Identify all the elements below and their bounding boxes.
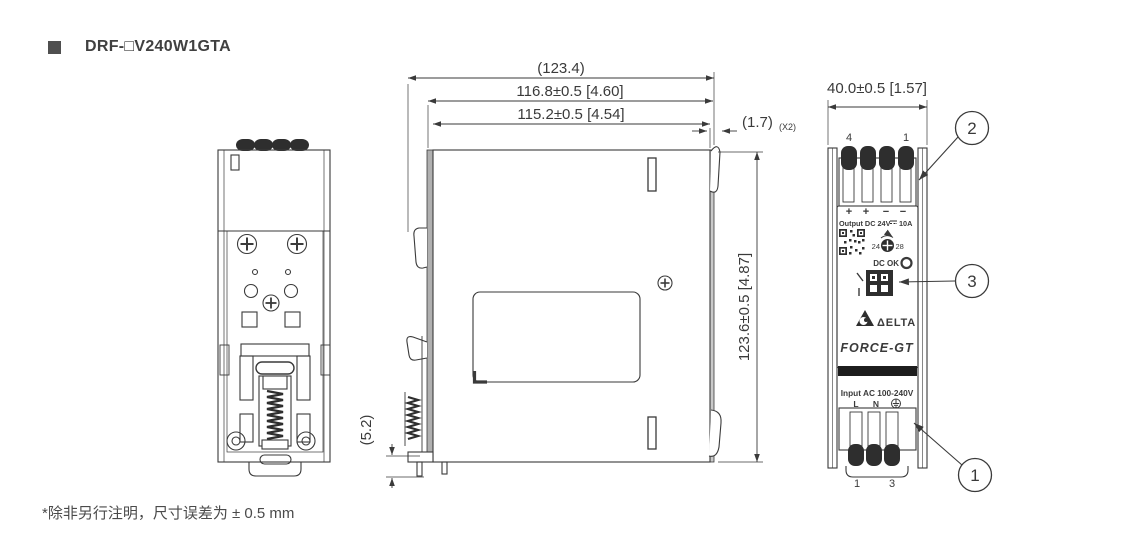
dim-front-width: 40.0±0.5 [1.57] — [827, 80, 927, 97]
callout-2: 2 — [919, 112, 989, 181]
qr-code — [839, 229, 865, 255]
phillips-screw-icon — [238, 235, 257, 254]
series-name: FORCE-GT — [840, 341, 914, 355]
dip-switch — [866, 270, 893, 296]
output-terminal-block — [839, 146, 916, 206]
input-terminal-block — [839, 408, 916, 477]
dc-ok-label: DC OK — [873, 259, 899, 268]
terminal-pin-4: 4 — [846, 132, 852, 144]
technical-drawing: 4 1 + + − − Output DC 24V 10A 24 — [0, 0, 1144, 536]
dim-clip-offset: (5.2) — [358, 415, 375, 446]
adjust-max-label: 28 — [896, 242, 904, 251]
top-mount-tab — [710, 147, 720, 192]
terminal-screws — [848, 444, 900, 466]
dim-overall-width: (123.4) — [537, 60, 585, 77]
terminal-pin-1: 1 — [903, 132, 909, 144]
rear-terminal-bumps — [236, 139, 309, 151]
brand-wordmark: ΔELTA — [877, 317, 916, 329]
square-cutout — [285, 312, 300, 327]
mount-hole — [245, 285, 258, 298]
adjust-min-label: 24 — [872, 242, 880, 251]
rear-view — [218, 139, 330, 476]
polarity-plus-1: + — [846, 206, 852, 218]
output-current-label: 10A — [899, 219, 913, 228]
side-view — [405, 147, 721, 476]
bottom-hook — [709, 410, 721, 456]
polarity-plus-2: + — [863, 206, 869, 218]
pilot-hole — [286, 270, 291, 275]
dc-ok-led-icon — [902, 258, 912, 268]
mount-hole — [285, 285, 298, 298]
dim-tab-qty: (X2) — [779, 122, 796, 132]
callout-1-number: 1 — [970, 466, 979, 485]
din-rail-clip — [227, 344, 315, 476]
dim-inner-width: 115.2±0.5 [4.54] — [517, 106, 624, 123]
ground-icon — [892, 399, 901, 408]
delta-logo — [856, 310, 874, 326]
polarity-minus-2: − — [900, 206, 906, 218]
side-body-outline — [433, 150, 710, 462]
terminal-pin-3-bottom: 3 — [889, 478, 895, 490]
input-rating-label: Input AC 100-240V — [841, 388, 914, 398]
callout-3: 3 — [899, 265, 989, 298]
terminal-pin-1-bottom: 1 — [854, 478, 860, 490]
dc-symbol-icon — [890, 221, 897, 224]
dim-height: 123.6±0.5 [4.87] — [736, 253, 753, 361]
potentiometer-icon — [881, 236, 894, 252]
phillips-screw-icon — [288, 235, 307, 254]
din-hook-top — [414, 228, 427, 268]
dim-body-width: 116.8±0.5 [4.60] — [516, 83, 623, 100]
pilot-hole — [253, 270, 258, 275]
clip-pin — [442, 462, 447, 474]
spring-icon — [267, 391, 283, 439]
tolerance-footnote: *除非另行注明，尺寸误差为 ± 0.5 mm — [42, 502, 294, 523]
callout-2-number: 2 — [967, 119, 976, 138]
separator-bar — [838, 366, 917, 376]
front-view: 4 1 + + − − Output DC 24V 10A 24 — [828, 132, 927, 490]
polarity-minus-1: − — [883, 206, 889, 218]
rear-vent-slot — [231, 155, 239, 170]
dim-tab-width: (1.7) — [742, 114, 773, 131]
callout-1: 1 — [914, 423, 992, 492]
callouts: 2 3 1 — [899, 112, 992, 492]
callout-3-number: 3 — [967, 272, 976, 291]
square-cutout — [242, 312, 257, 327]
clip-pin — [417, 462, 422, 476]
din-hook-bottom — [407, 337, 427, 361]
spring-icon — [408, 397, 418, 439]
phillips-screw-icon — [263, 295, 279, 311]
output-rating-label: Output DC 24V — [839, 219, 891, 228]
